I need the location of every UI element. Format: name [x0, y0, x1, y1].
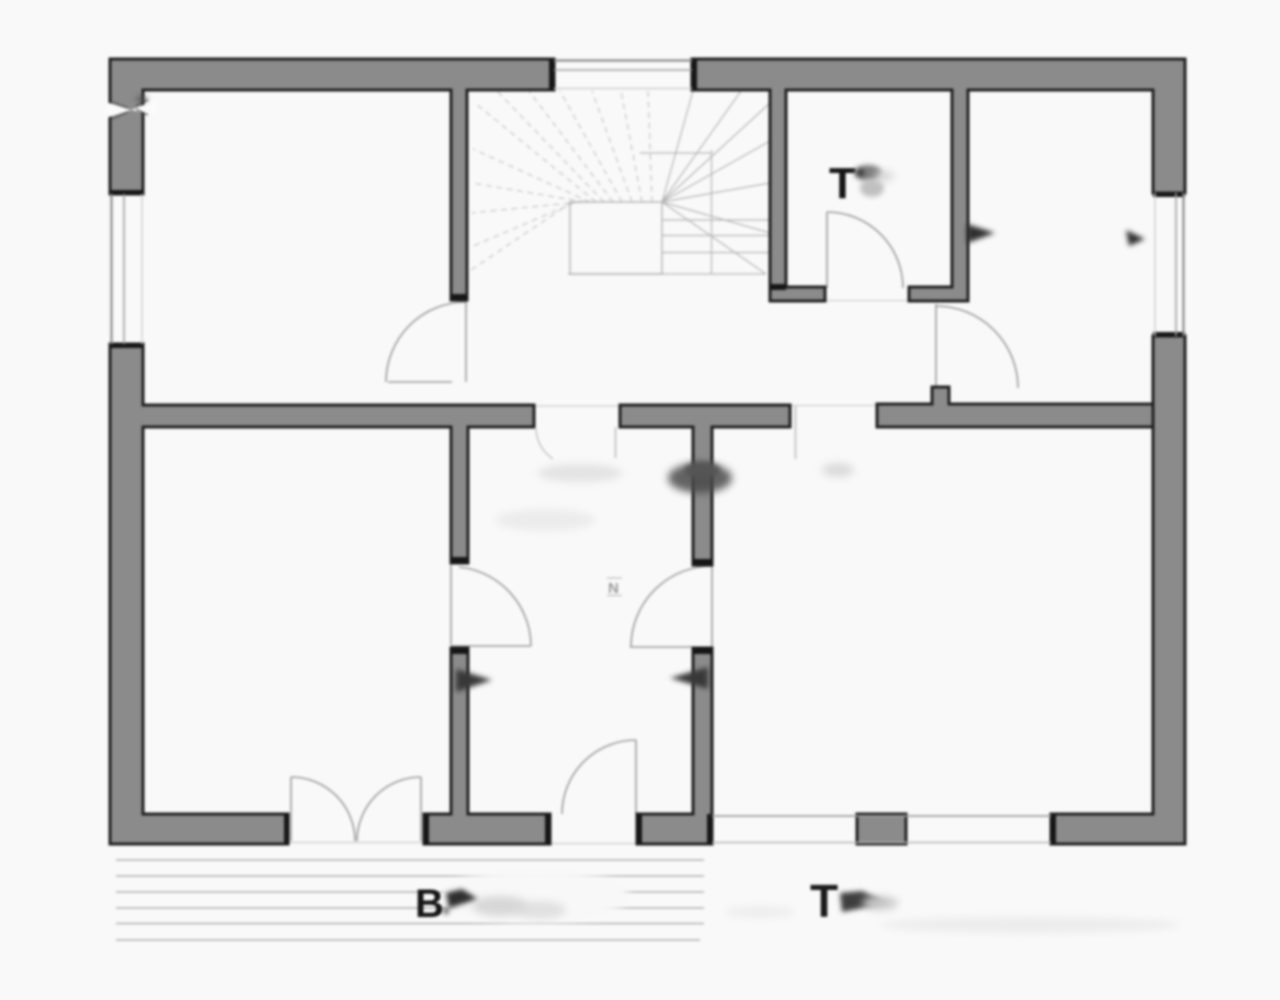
svg-text:T: T	[829, 159, 856, 208]
svg-text:T: T	[810, 875, 838, 927]
svg-text:N: N	[608, 580, 619, 597]
svg-text:B: B	[415, 882, 444, 926]
